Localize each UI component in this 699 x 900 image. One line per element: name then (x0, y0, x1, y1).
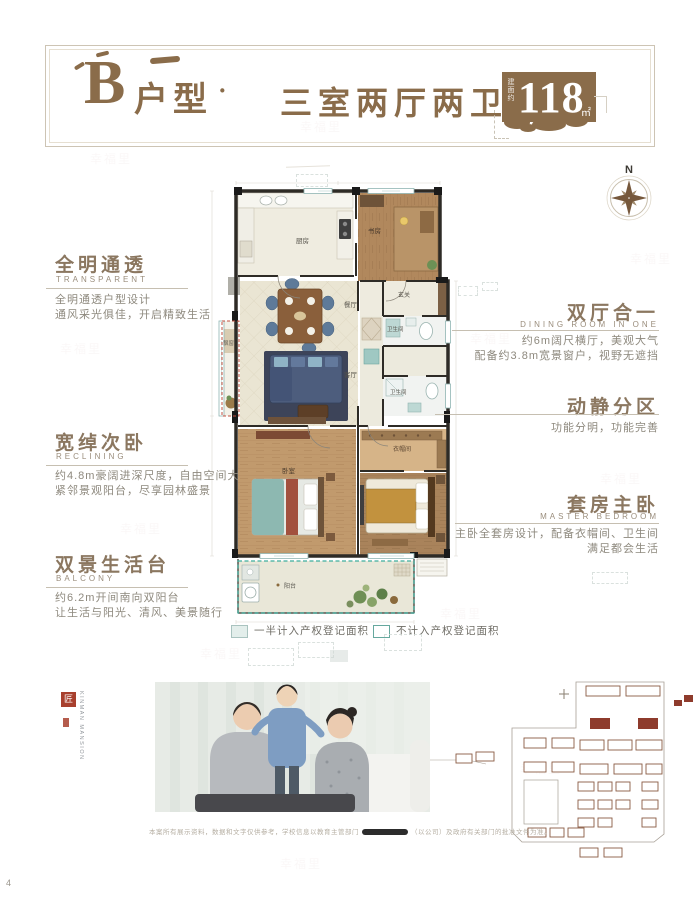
structural-column (228, 277, 240, 295)
page-corner-mark: 4 (6, 878, 11, 888)
label-bath-upper: 卫生间 (387, 325, 404, 333)
annotation-body: 配备约3.8m宽景窗户，视野无遮挡 (475, 349, 659, 364)
watermark: 幸福里 (200, 645, 242, 662)
annotation-body: 满足都会生活 (587, 542, 659, 557)
annotation-body: 主卧全套房设计，配备衣帽间、卫生间 (455, 527, 659, 542)
area-prefix: 建面约 (506, 78, 516, 102)
unit-letter: B (84, 52, 125, 114)
disclaimer-text: 本案所有展示资料，数据和文字仅供参考，学校信息以教育主管部门 (149, 829, 359, 836)
label-bedroom: 卧室 (282, 466, 296, 475)
highlighted-buildings (590, 695, 693, 729)
annotation-leader (452, 330, 659, 331)
drafting-mark (458, 286, 478, 296)
drafting-mark (482, 282, 498, 291)
table (195, 794, 355, 812)
legend-swatch-half-counted (231, 625, 248, 638)
label-bay: 飘窗 (223, 339, 235, 347)
drafting-mark (286, 165, 330, 168)
drafting-mark (248, 648, 294, 666)
annotation-subtitle: RECLINING (56, 452, 127, 461)
brand-seal-icon: 匠 (61, 692, 76, 707)
label-study: 书房 (368, 226, 381, 235)
annotation-title: 宽绰次卧 (55, 428, 147, 455)
measure-mark (494, 110, 509, 139)
area-value: 118 (518, 72, 585, 122)
area-unit: ㎡ (581, 104, 591, 119)
drafting-mark (330, 650, 348, 662)
annotation-title: 双景生活台 (55, 550, 170, 577)
label-cloakroom: 衣帽间 (393, 445, 411, 453)
drafting-mark (298, 642, 334, 658)
seal-mark-icon (63, 718, 69, 727)
compass-icon: N (598, 160, 660, 222)
annotation-rule (46, 465, 188, 466)
area-badge: 建面约 118 ㎡ (502, 72, 596, 122)
annotation-body: 通风采光俱佳，开启精致生活 (55, 308, 211, 323)
watermark: 幸福里 (470, 330, 512, 347)
annotation-body: 全明通透户型设计 (55, 293, 151, 308)
legend-label: 一半计入产权登记面积 (254, 623, 369, 638)
plus-mark (559, 689, 569, 699)
brand-logo-strip: 匠 KINMAN MANSION (55, 682, 97, 812)
brand-name-vertical: KINMAN MANSION (78, 691, 84, 801)
watermark: 幸福里 (630, 250, 672, 267)
annotation-title: 全明通透 (55, 250, 147, 277)
annotation-subtitle: TRANSPARENT (56, 275, 148, 284)
annotation-body: 紧邻景观阳台，尽享园林盛景 (55, 484, 211, 499)
family-photo-illustration (155, 682, 430, 812)
annotation-body: 让生活与阳光、清风、美景随行 (55, 606, 223, 621)
label-bath-lower: 卫生间 (390, 388, 407, 396)
label-living: 客厅 (344, 370, 358, 379)
redaction-blot (362, 829, 408, 835)
watermark: 幸福里 (120, 520, 162, 537)
label-balcony: 阳台 (284, 582, 296, 590)
annotation-body: 约6.2m开间南向双阳台 (55, 591, 179, 606)
floorplan-drawing: 厨房 书房 玄关 卫生间 餐厅 客厅 飘窗 卫生间 衣帽间 卧室 阳台 (208, 181, 460, 628)
annotation-subtitle: BALCONY (56, 574, 115, 583)
annotation-subtitle: DINING ROOM IN ONE (520, 320, 659, 329)
svg-text:N: N (625, 164, 633, 176)
disclaimer-text: （以公司）及政府有关部门的批准文件为准。 (411, 829, 551, 836)
annotation-rule (46, 288, 188, 289)
balcony-floor (238, 561, 414, 613)
watermark: 幸福里 (60, 340, 102, 357)
label-entry: 玄关 (398, 291, 410, 299)
measure-mark (594, 96, 607, 113)
drafting-mark (384, 634, 422, 651)
annotation-body: 约4.8m豪阔进深尺度，自由空间大 (55, 469, 239, 484)
ac-platform (417, 559, 447, 576)
annotation-subtitle: MASTER BEDROOM (540, 512, 659, 521)
lifestyle-photo: 匠 KINMAN MANSION (55, 682, 430, 812)
separator-dot: · (218, 76, 227, 106)
site-open-block (524, 780, 558, 824)
unit-suffix: 户型 (134, 72, 212, 121)
watermark: 幸福里 (280, 855, 322, 872)
annotation-leader (455, 523, 659, 524)
watermark: 幸福里 (90, 150, 132, 167)
drafting-mark (592, 572, 628, 584)
disclaimer: 本案所有展示资料，数据和文字仅供参考，学校信息以教育主管部门（以公司）及政府有关… (35, 826, 665, 836)
layout-summary: 三室两厅两卫 (280, 78, 508, 124)
site-plan (428, 668, 694, 874)
watermark: 幸福里 (600, 470, 642, 487)
annotation-rule (46, 587, 188, 588)
floorplan-poster: 幸福里 幸福里 幸福里 幸福里 幸福里 幸福里 幸福里 幸福里 幸福里 幸福里 … (0, 0, 699, 900)
annotation-body: 约6m阔尺横厅，美观大气 (522, 334, 659, 349)
label-dining: 餐厅 (344, 300, 358, 309)
annotation-body: 功能分明，功能完善 (551, 421, 659, 436)
annotation-leader (435, 414, 659, 415)
living-sofa (264, 351, 348, 424)
label-kitchen: 厨房 (296, 236, 309, 245)
